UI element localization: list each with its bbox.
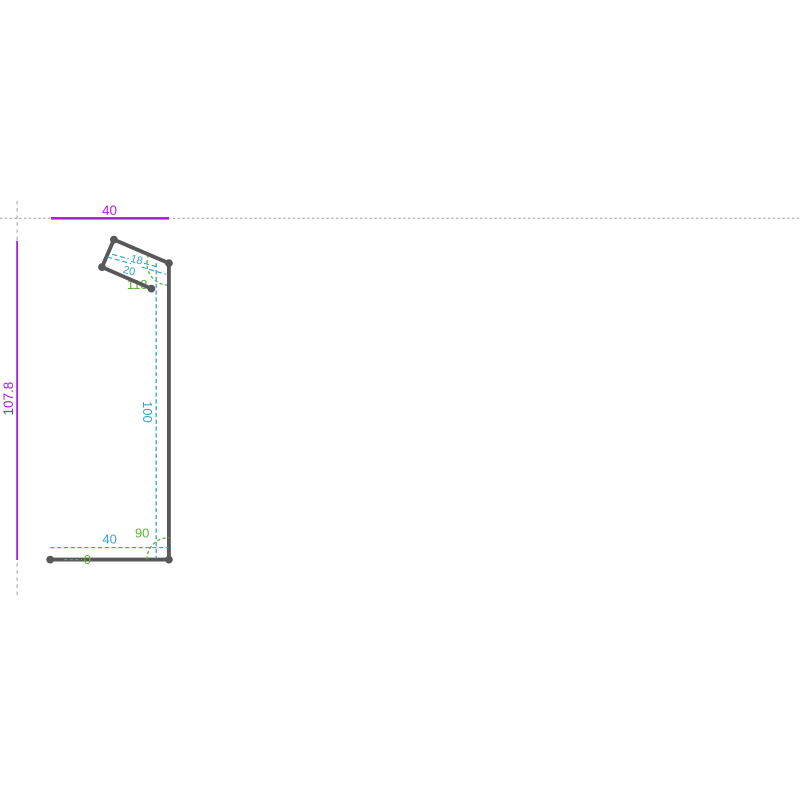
svg-text:40: 40 — [102, 203, 117, 218]
svg-text:90: 90 — [135, 526, 149, 541]
svg-text:100: 100 — [140, 401, 155, 423]
svg-text:40: 40 — [102, 532, 116, 547]
svg-text:0: 0 — [84, 552, 91, 567]
svg-text:107.8: 107.8 — [1, 382, 16, 416]
